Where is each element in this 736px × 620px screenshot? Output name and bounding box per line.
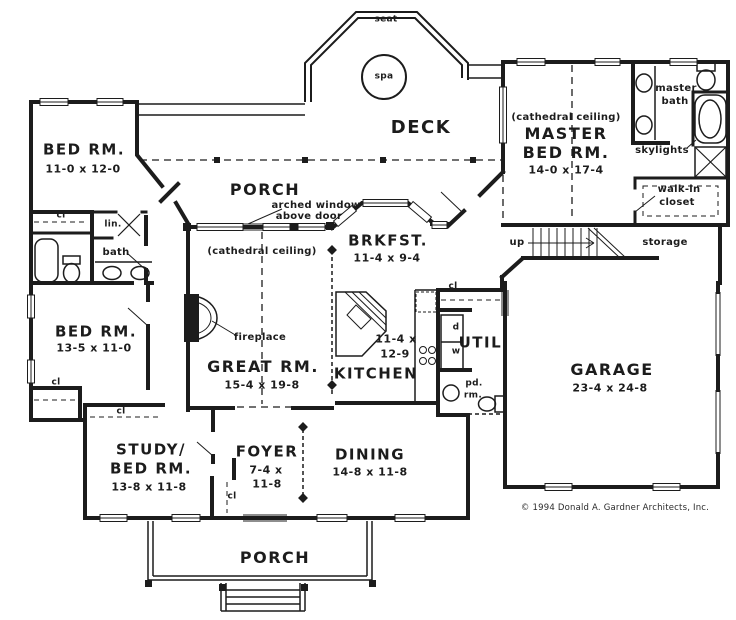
closet-label-utility: cl <box>448 283 457 292</box>
copyright-notice: © 1994 Donald A. Gardner Architects, Inc… <box>521 504 709 513</box>
closet-label-hall: cl <box>56 212 65 221</box>
walk-in-closet-line1: walk-in <box>658 185 701 195</box>
dryer-label: d <box>453 324 460 333</box>
stairs-up-label: up <box>510 238 525 248</box>
deck-spa-label: spa <box>375 73 394 82</box>
bedroom-lower-name: BED RM. <box>55 325 137 340</box>
powder-room-line2: rm. <box>464 392 482 401</box>
great-room-ceiling-note: (cathedral ceiling) <box>207 247 316 257</box>
dining-dims: 14-8 x 11-8 <box>332 467 407 478</box>
study-name-line1: STUDY/ <box>116 443 186 458</box>
breakfast-name: BRKFST. <box>348 234 428 249</box>
garage-name: GARAGE <box>570 362 653 378</box>
powder-room-line1: pd. <box>465 380 482 389</box>
arched-window-note-line2: above door <box>276 212 342 222</box>
bedroom-upper-name: BED RM. <box>43 143 125 158</box>
master-name-line1: MASTER <box>525 126 608 142</box>
great-room-name: GREAT RM. <box>207 359 319 375</box>
bath-label: bath <box>102 248 129 258</box>
kitchen-dims-line1: 11-4 x <box>375 334 416 345</box>
fireplace-label: fireplace <box>234 333 286 343</box>
master-ceiling-note: (cathedral ceiling) <box>511 113 620 123</box>
dining-name: DINING <box>335 448 405 463</box>
closet-label-study: cl <box>116 408 125 417</box>
kitchen-name: KITCHEN <box>334 367 418 382</box>
floor-plan-drawing <box>0 0 736 620</box>
bedroom-lower-dims: 13-5 x 11-0 <box>56 343 131 354</box>
master-bath-line2: bath <box>661 97 688 107</box>
deck-seat-label: seat <box>374 16 397 25</box>
master-bath-line1: master <box>655 84 696 94</box>
skylights-label: skylights <box>635 146 689 156</box>
storage-label: storage <box>642 238 687 248</box>
kitchen-dims-line2: 12-9 <box>380 349 410 360</box>
foyer-dims-line1: 7-4 x <box>249 465 282 476</box>
walk-in-closet-line2: closet <box>659 198 695 208</box>
front-porch-label: PORCH <box>230 182 300 198</box>
study-name-line2: BED RM. <box>110 462 192 477</box>
closet-label-bedroom: cl <box>51 379 60 388</box>
garage-dims: 23-4 x 24-8 <box>572 383 647 394</box>
floor-plan-sheet: seat spa DECK PORCH arched window above … <box>0 0 736 620</box>
master-dims: 14-0 x 17-4 <box>528 165 603 176</box>
breakfast-dims: 11-4 x 9-4 <box>353 253 420 264</box>
deck-label: DECK <box>391 119 451 137</box>
arched-window-note-line1: arched window <box>271 201 360 211</box>
closet-label-foyer: cl <box>227 493 236 502</box>
master-name-line2: BED RM. <box>523 145 610 161</box>
study-dims: 13-8 x 11-8 <box>111 482 186 493</box>
utility-name: UTIL. <box>459 336 510 351</box>
great-room-dims: 15-4 x 19-8 <box>224 380 299 391</box>
foyer-dims-line2: 11-8 <box>252 479 282 490</box>
rear-porch-label: PORCH <box>240 550 310 566</box>
linen-label: lin. <box>104 221 121 230</box>
bedroom-upper-dims: 11-0 x 12-0 <box>45 164 120 175</box>
foyer-name: FOYER <box>236 445 299 460</box>
